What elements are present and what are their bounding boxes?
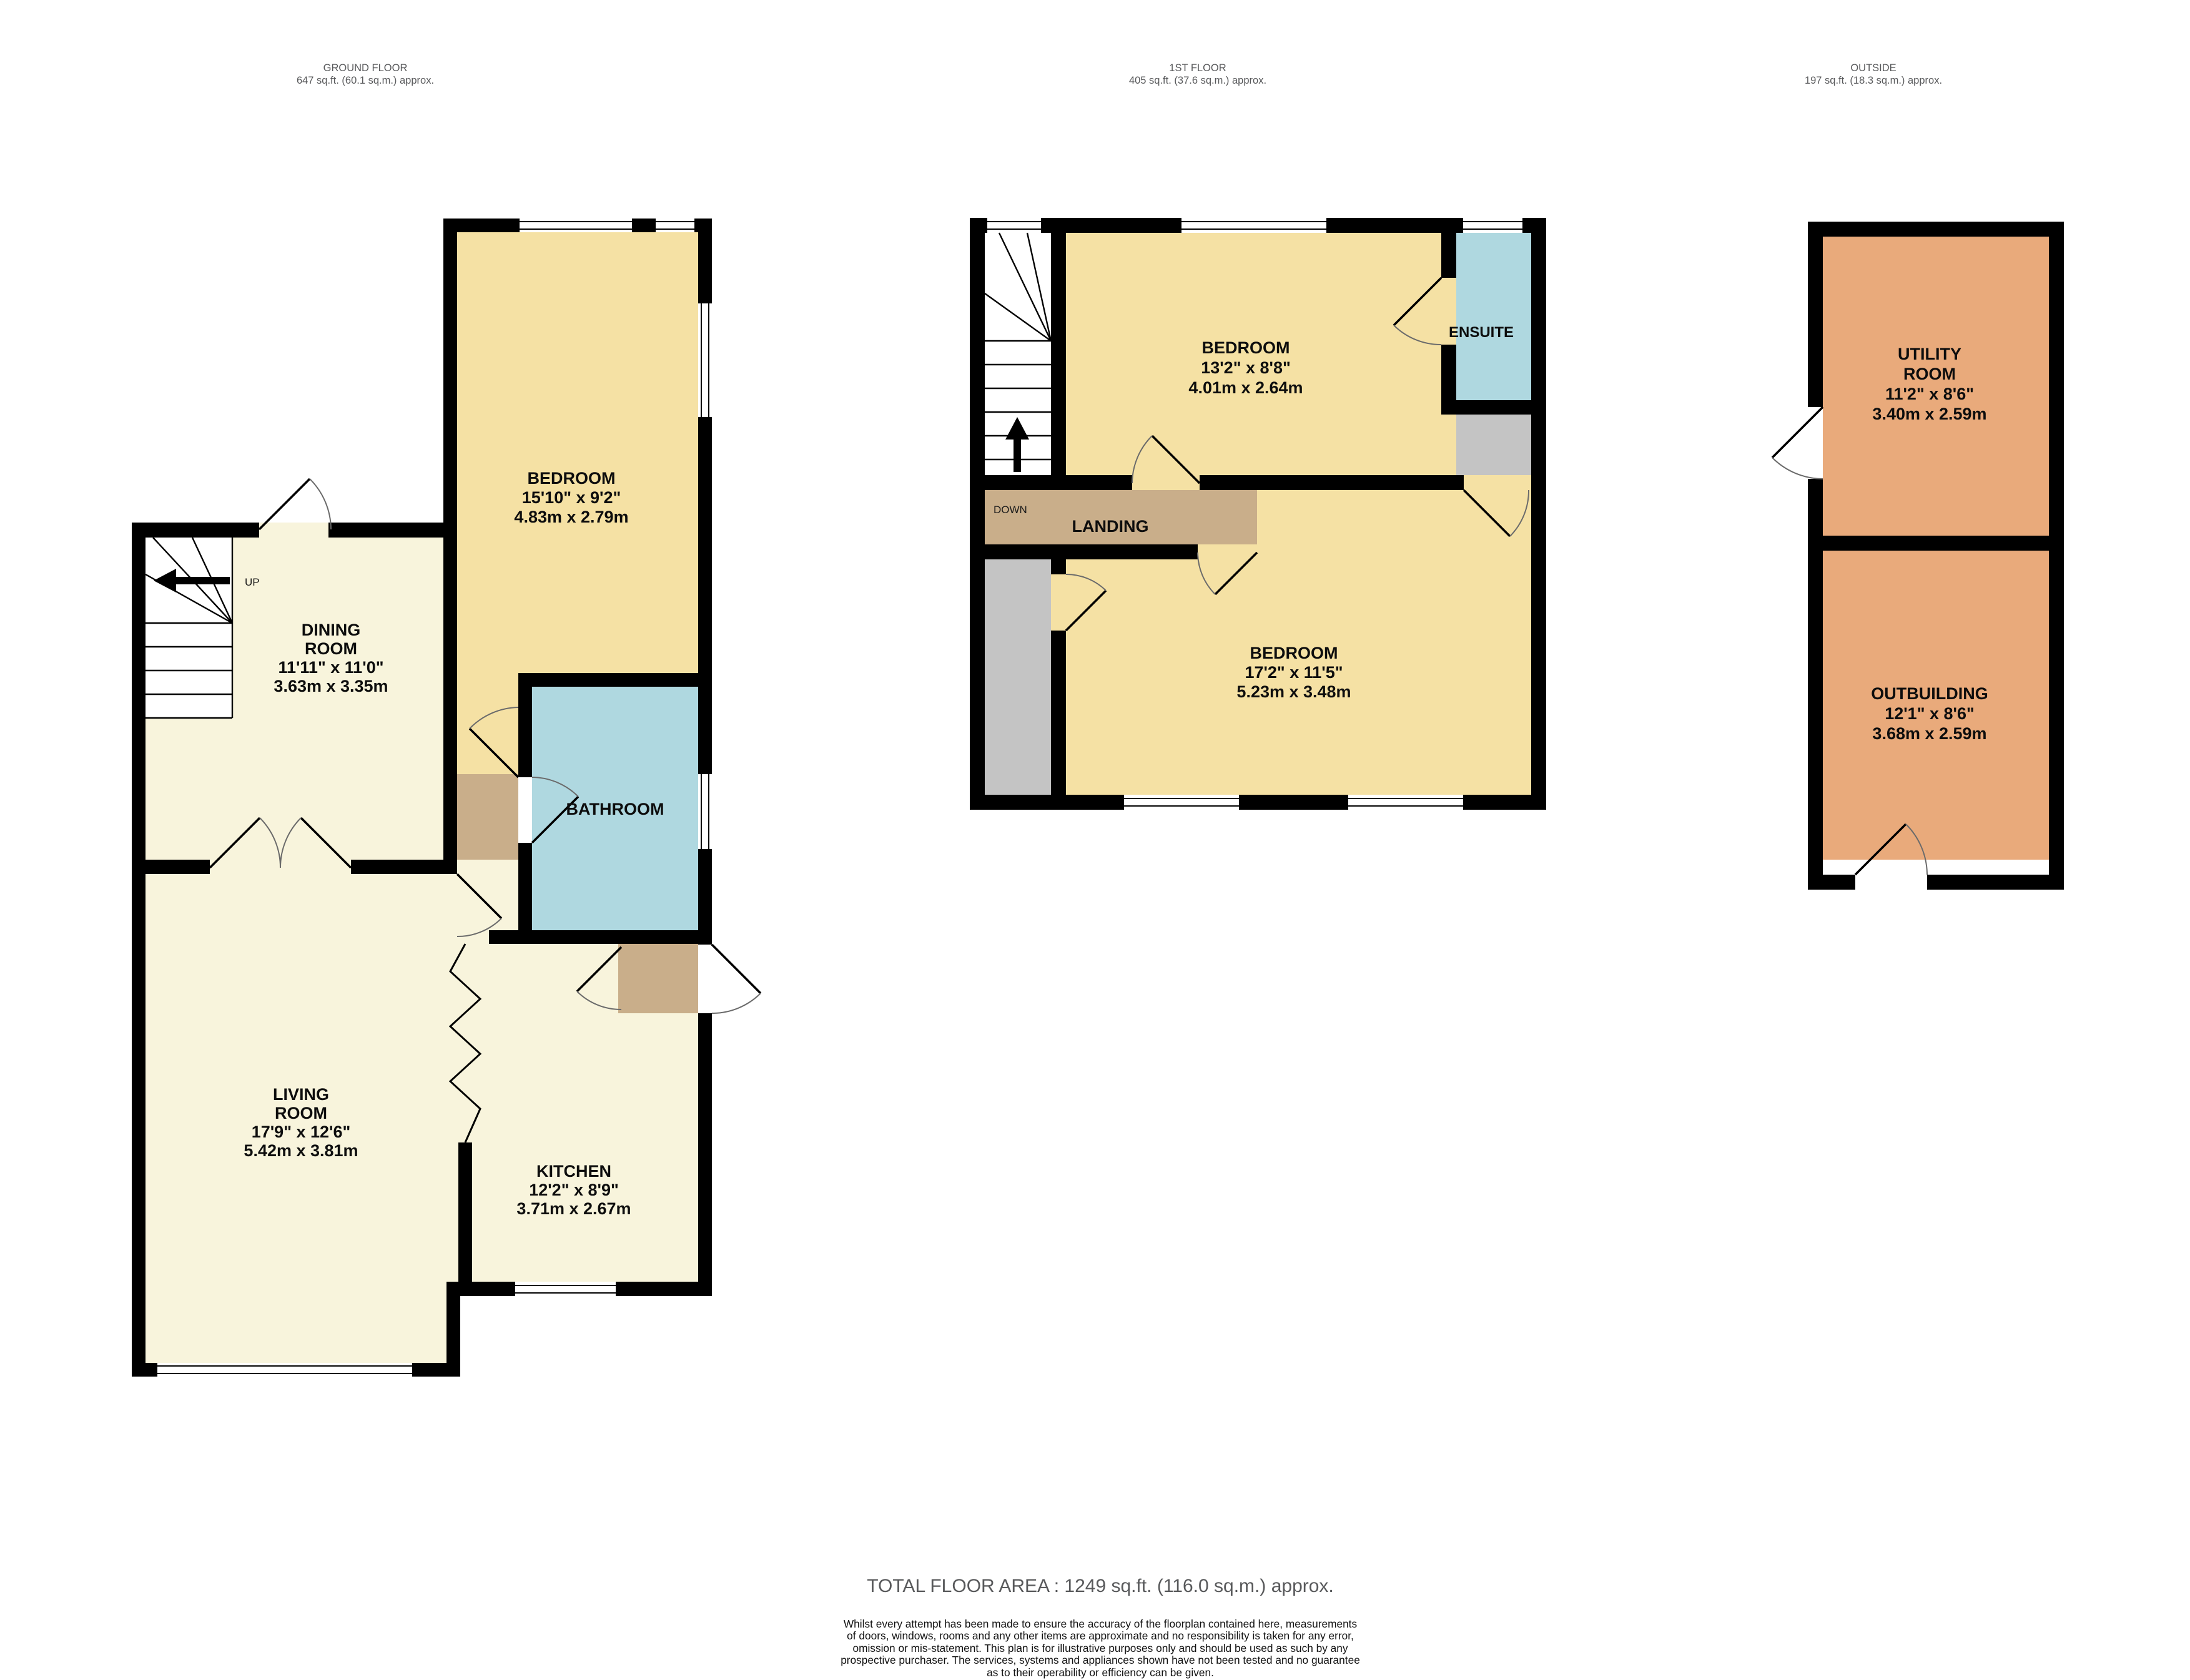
out-outbuilding-name: OUTBUILDING <box>1871 684 1988 703</box>
window <box>987 218 1041 233</box>
floorplan-page: GROUND FLOOR 647 sq.ft. (60.1 sq.m.) app… <box>0 0 2190 1680</box>
gf-living-imperial: 17'9" x 12'6" <box>252 1122 351 1141</box>
total-floor-area: TOTAL FLOOR AREA : 1249 sq.ft. (116.0 sq… <box>726 1576 1475 1597</box>
ff-bedroom-front-imperial: 13'2" x 8'8" <box>1201 358 1291 377</box>
gf-bathroom-name: BATHROOM <box>566 800 664 818</box>
outside-header: OUTSIDE 197 sq.ft. (18.3 sq.m.) approx. <box>1749 62 1998 87</box>
out-utility-metric: 3.40m x 2.59m <box>1872 405 1986 423</box>
ground-floor-area: 647 sq.ft. (60.1 sq.m.) approx. <box>240 75 490 87</box>
outside-area: 197 sq.ft. (18.3 sq.m.) approx. <box>1749 75 1998 87</box>
gf-kitchen-name: KITCHEN <box>536 1162 611 1181</box>
gf-entry-area <box>618 944 698 1013</box>
first-floor-title: 1ST FLOOR <box>1073 62 1323 75</box>
window <box>1124 795 1239 810</box>
ground-floor-header: GROUND FLOOR 647 sq.ft. (60.1 sq.m.) app… <box>240 62 490 87</box>
out-outbuilding-door-gap <box>1855 875 1927 890</box>
first-floor-plan: BEDROOM 13'2" x 8'8" 4.01m x 2.64m ENSUI… <box>962 212 1555 818</box>
ff-bedroom-front-name: BEDROOM <box>1202 338 1290 357</box>
ff-bedroom-rear-metric: 5.23m x 3.48m <box>1236 682 1351 701</box>
gf-dining-name2: ROOM <box>305 639 357 658</box>
ff-ensuite-name: ENSUITE <box>1449 324 1514 341</box>
window <box>1463 218 1522 233</box>
ff-bedroom-rear-imperial: 17'2" x 11'5" <box>1245 663 1343 682</box>
first-floor-header: 1ST FLOOR 405 sq.ft. (37.6 sq.m.) approx… <box>1073 62 1323 87</box>
first-floor-area: 405 sq.ft. (37.6 sq.m.) approx. <box>1073 75 1323 87</box>
out-outbuilding-imperial: 12'1" x 8'6" <box>1885 704 1975 723</box>
window <box>515 1282 616 1296</box>
door-arc <box>259 479 331 529</box>
out-outbuilding-metric: 3.68m x 2.59m <box>1872 724 1986 743</box>
gf-bathroom-door-gap <box>518 777 532 843</box>
gf-dining-name1: DINING <box>302 621 361 639</box>
ff-ensuite-area <box>1456 233 1531 400</box>
gf-bedroom-metric: 4.83m x 2.79m <box>514 508 628 526</box>
outside-title: OUTSIDE <box>1749 62 1998 75</box>
out-utility-imperial: 11'2" x 8'6" <box>1885 385 1974 403</box>
window <box>698 303 712 417</box>
ground-floor-plan: UP BEDROOM 15'10" x 9'2" 4.83m x 2.79m D… <box>119 212 793 1386</box>
window <box>656 219 694 232</box>
window <box>1181 218 1326 233</box>
ff-bedroom-front-metric: 4.01m x 2.64m <box>1188 378 1303 397</box>
window <box>698 774 712 849</box>
gf-living-metric: 5.42m x 3.81m <box>244 1141 358 1160</box>
gf-bedroom-imperial: 15'10" x 9'2" <box>522 488 621 507</box>
ff-closet-area <box>1456 415 1531 475</box>
ff-bedroom-rear-name: BEDROOM <box>1250 644 1338 662</box>
disclaimer-line: prospective purchaser. The services, sys… <box>757 1654 1444 1666</box>
disclaimer-line: of doors, windows, rooms and any other i… <box>757 1630 1444 1642</box>
disclaimer-line: as to their operability or efficiency ca… <box>757 1667 1444 1679</box>
disclaimer: Whilst every attempt has been made to en… <box>757 1618 1444 1680</box>
window <box>157 1363 412 1377</box>
gf-bedroom-name: BEDROOM <box>528 469 616 488</box>
out-utility-door-gap <box>1808 407 1823 479</box>
ff-stairs-label: DOWN <box>994 504 1027 516</box>
disclaimer-line: omission or mis-statement. This plan is … <box>757 1643 1444 1654</box>
ground-floor-title: GROUND FLOOR <box>240 62 490 75</box>
window <box>1348 795 1463 810</box>
gf-living-name1: LIVING <box>273 1085 329 1104</box>
gf-living-name2: ROOM <box>275 1104 327 1122</box>
gf-kitchen-metric: 3.71m x 2.67m <box>516 1199 631 1218</box>
gf-hall-area <box>457 774 518 860</box>
disclaimer-line: Whilst every attempt has been made to en… <box>757 1618 1444 1630</box>
door-arc <box>712 945 761 1013</box>
ff-landing-name: LANDING <box>1072 517 1149 536</box>
gf-kitchen-imperial: 12'2" x 8'9" <box>529 1181 619 1199</box>
ff-void-area <box>985 559 1051 795</box>
out-utility-name2: ROOM <box>1903 365 1956 383</box>
outside-plan: UTILITY ROOM 11'2" x 8'6" 3.40m x 2.59m … <box>1742 215 2073 899</box>
window <box>520 219 632 232</box>
out-utility-name1: UTILITY <box>1898 345 1961 363</box>
gf-side-door-gap <box>698 945 712 1013</box>
gf-dining-imperial: 11'11" x 11'0" <box>278 658 383 677</box>
gf-dining-metric: 3.63m x 3.35m <box>274 677 388 695</box>
gf-stairs-label: UP <box>245 576 260 588</box>
